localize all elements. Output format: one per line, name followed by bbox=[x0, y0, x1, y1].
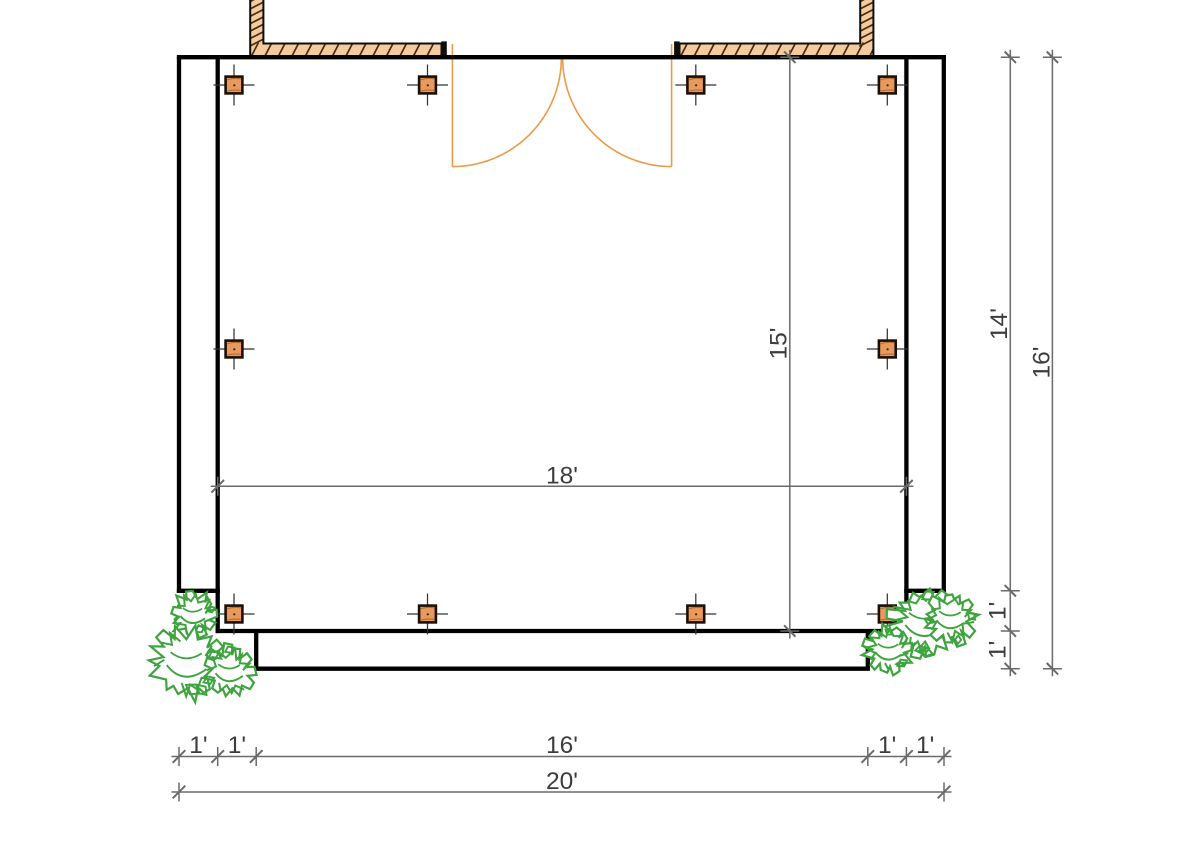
svg-text:18': 18' bbox=[546, 463, 578, 490]
svg-text:20': 20' bbox=[546, 768, 578, 795]
svg-text:1': 1' bbox=[916, 732, 934, 759]
svg-text:14': 14' bbox=[986, 308, 1013, 340]
svg-text:15': 15' bbox=[765, 328, 792, 360]
svg-text:1': 1' bbox=[228, 732, 246, 759]
svg-text:1': 1' bbox=[189, 732, 207, 759]
svg-text:16': 16' bbox=[1028, 347, 1055, 379]
svg-text:1': 1' bbox=[878, 732, 896, 759]
svg-text:1': 1' bbox=[985, 641, 1012, 659]
svg-text:1': 1' bbox=[985, 602, 1012, 620]
svg-text:16': 16' bbox=[546, 732, 578, 759]
